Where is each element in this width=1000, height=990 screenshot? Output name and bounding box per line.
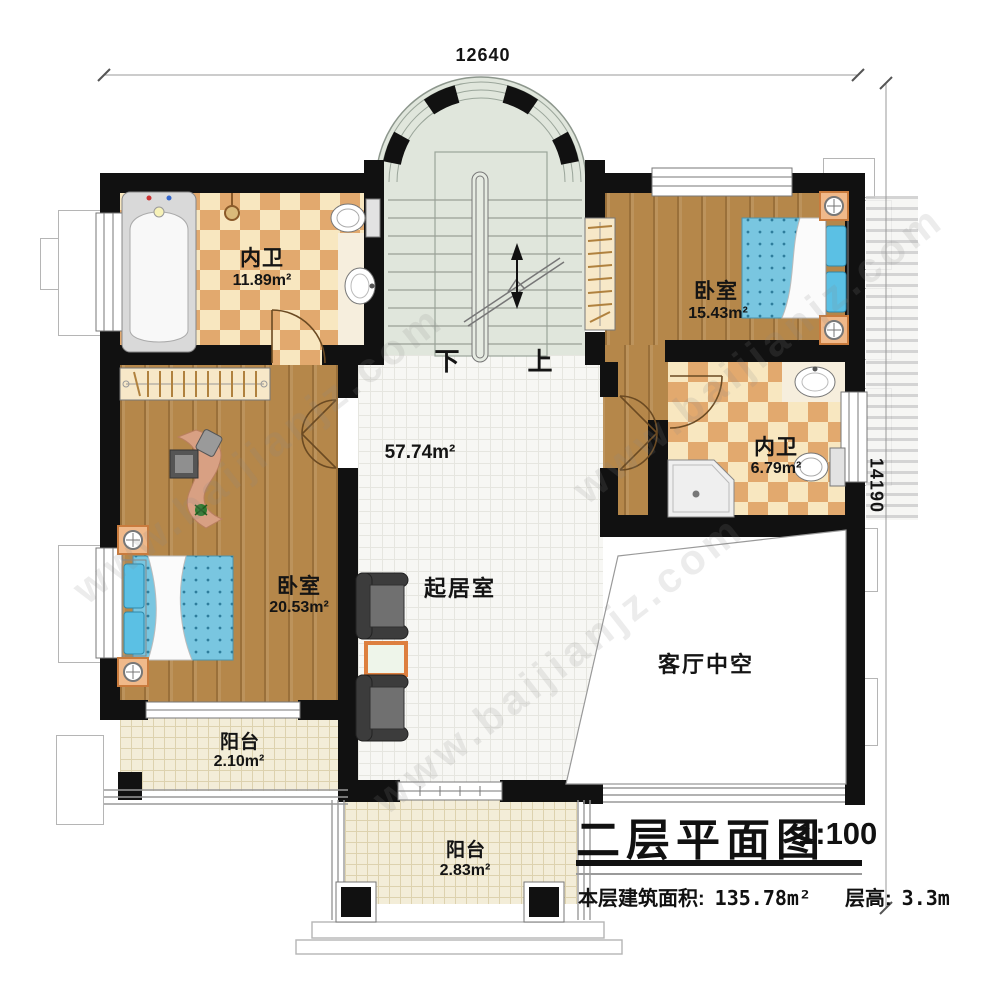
- dimension-top: 12640: [455, 46, 510, 65]
- side-table: [366, 643, 406, 675]
- balcony1-name: 阳台: [220, 733, 260, 753]
- void-name: 客厅中空: [658, 653, 754, 676]
- stair-direction-arrows: [511, 243, 523, 309]
- bathtub: [122, 192, 196, 352]
- bath1-area: 11.89m²: [233, 273, 292, 290]
- balcony2-columns: [336, 882, 564, 922]
- bath2-toilet: [794, 448, 845, 486]
- bath1-door: [272, 310, 325, 363]
- bath1-toilet: [331, 199, 380, 237]
- bath1-shower-drain: [225, 193, 239, 220]
- bath2-sink: [795, 367, 835, 398]
- bed1: [742, 218, 848, 318]
- plan-scale: 1:100: [798, 816, 877, 852]
- balcony2-name: 阳台: [446, 841, 486, 861]
- balcony2-area: 2.83m²: [440, 863, 491, 880]
- stairs-down-label: 下: [434, 349, 459, 375]
- bath2-area: 6.79m²: [751, 461, 802, 478]
- bed2-balcony-opening: [146, 702, 300, 718]
- floor-height-label: 层高:: [845, 882, 892, 911]
- stair-closet: [585, 218, 615, 330]
- title-info-line: 本层建筑面积: 135.78m² 层高: 3.3m: [578, 882, 950, 911]
- armchair: [356, 675, 408, 741]
- bath2-shower: [668, 460, 734, 517]
- bed2-double-door: [302, 400, 336, 468]
- bath1-window: [96, 213, 122, 331]
- bed1-area: 15.43m²: [688, 306, 748, 323]
- bed2-window: [96, 548, 122, 658]
- living-name: 起居室: [424, 577, 496, 600]
- bed2: [122, 556, 233, 660]
- floor-area-label: 本层建筑面积:: [578, 882, 705, 911]
- floor-height-value: 3.3m: [902, 886, 950, 910]
- balcony1-area: 2.10m²: [214, 754, 265, 771]
- bed2-wardrobe: [120, 368, 270, 400]
- living-balcony-door: [398, 782, 502, 800]
- bath2-door: [670, 376, 722, 428]
- dimension-right: 14190: [867, 458, 886, 513]
- bath2-name: 内卫: [754, 437, 798, 459]
- bed1-name: 卧室: [694, 281, 738, 303]
- stairs-up-label: 上: [527, 349, 552, 375]
- title-rule-thick: [576, 860, 862, 866]
- bed1-window: [652, 168, 792, 196]
- bath1-name: 内卫: [240, 248, 284, 270]
- stair-arch: [376, 77, 586, 182]
- void-railing: [603, 788, 845, 802]
- bath1-sink: [345, 268, 375, 304]
- floor-plan-page: www.baijianjz.com www.baijianjz.com www.…: [0, 0, 1000, 990]
- bed2-desk: [170, 429, 223, 528]
- bed2-area: 20.53m²: [269, 600, 329, 617]
- title-rule-thin: [576, 873, 862, 875]
- living-area: 57.74m²: [385, 443, 456, 463]
- plan-title: 二层平面图: [576, 804, 826, 868]
- armchair: [356, 573, 408, 639]
- floor-area-value: 135.78m²: [715, 886, 811, 910]
- bed2-name: 卧室: [277, 576, 321, 598]
